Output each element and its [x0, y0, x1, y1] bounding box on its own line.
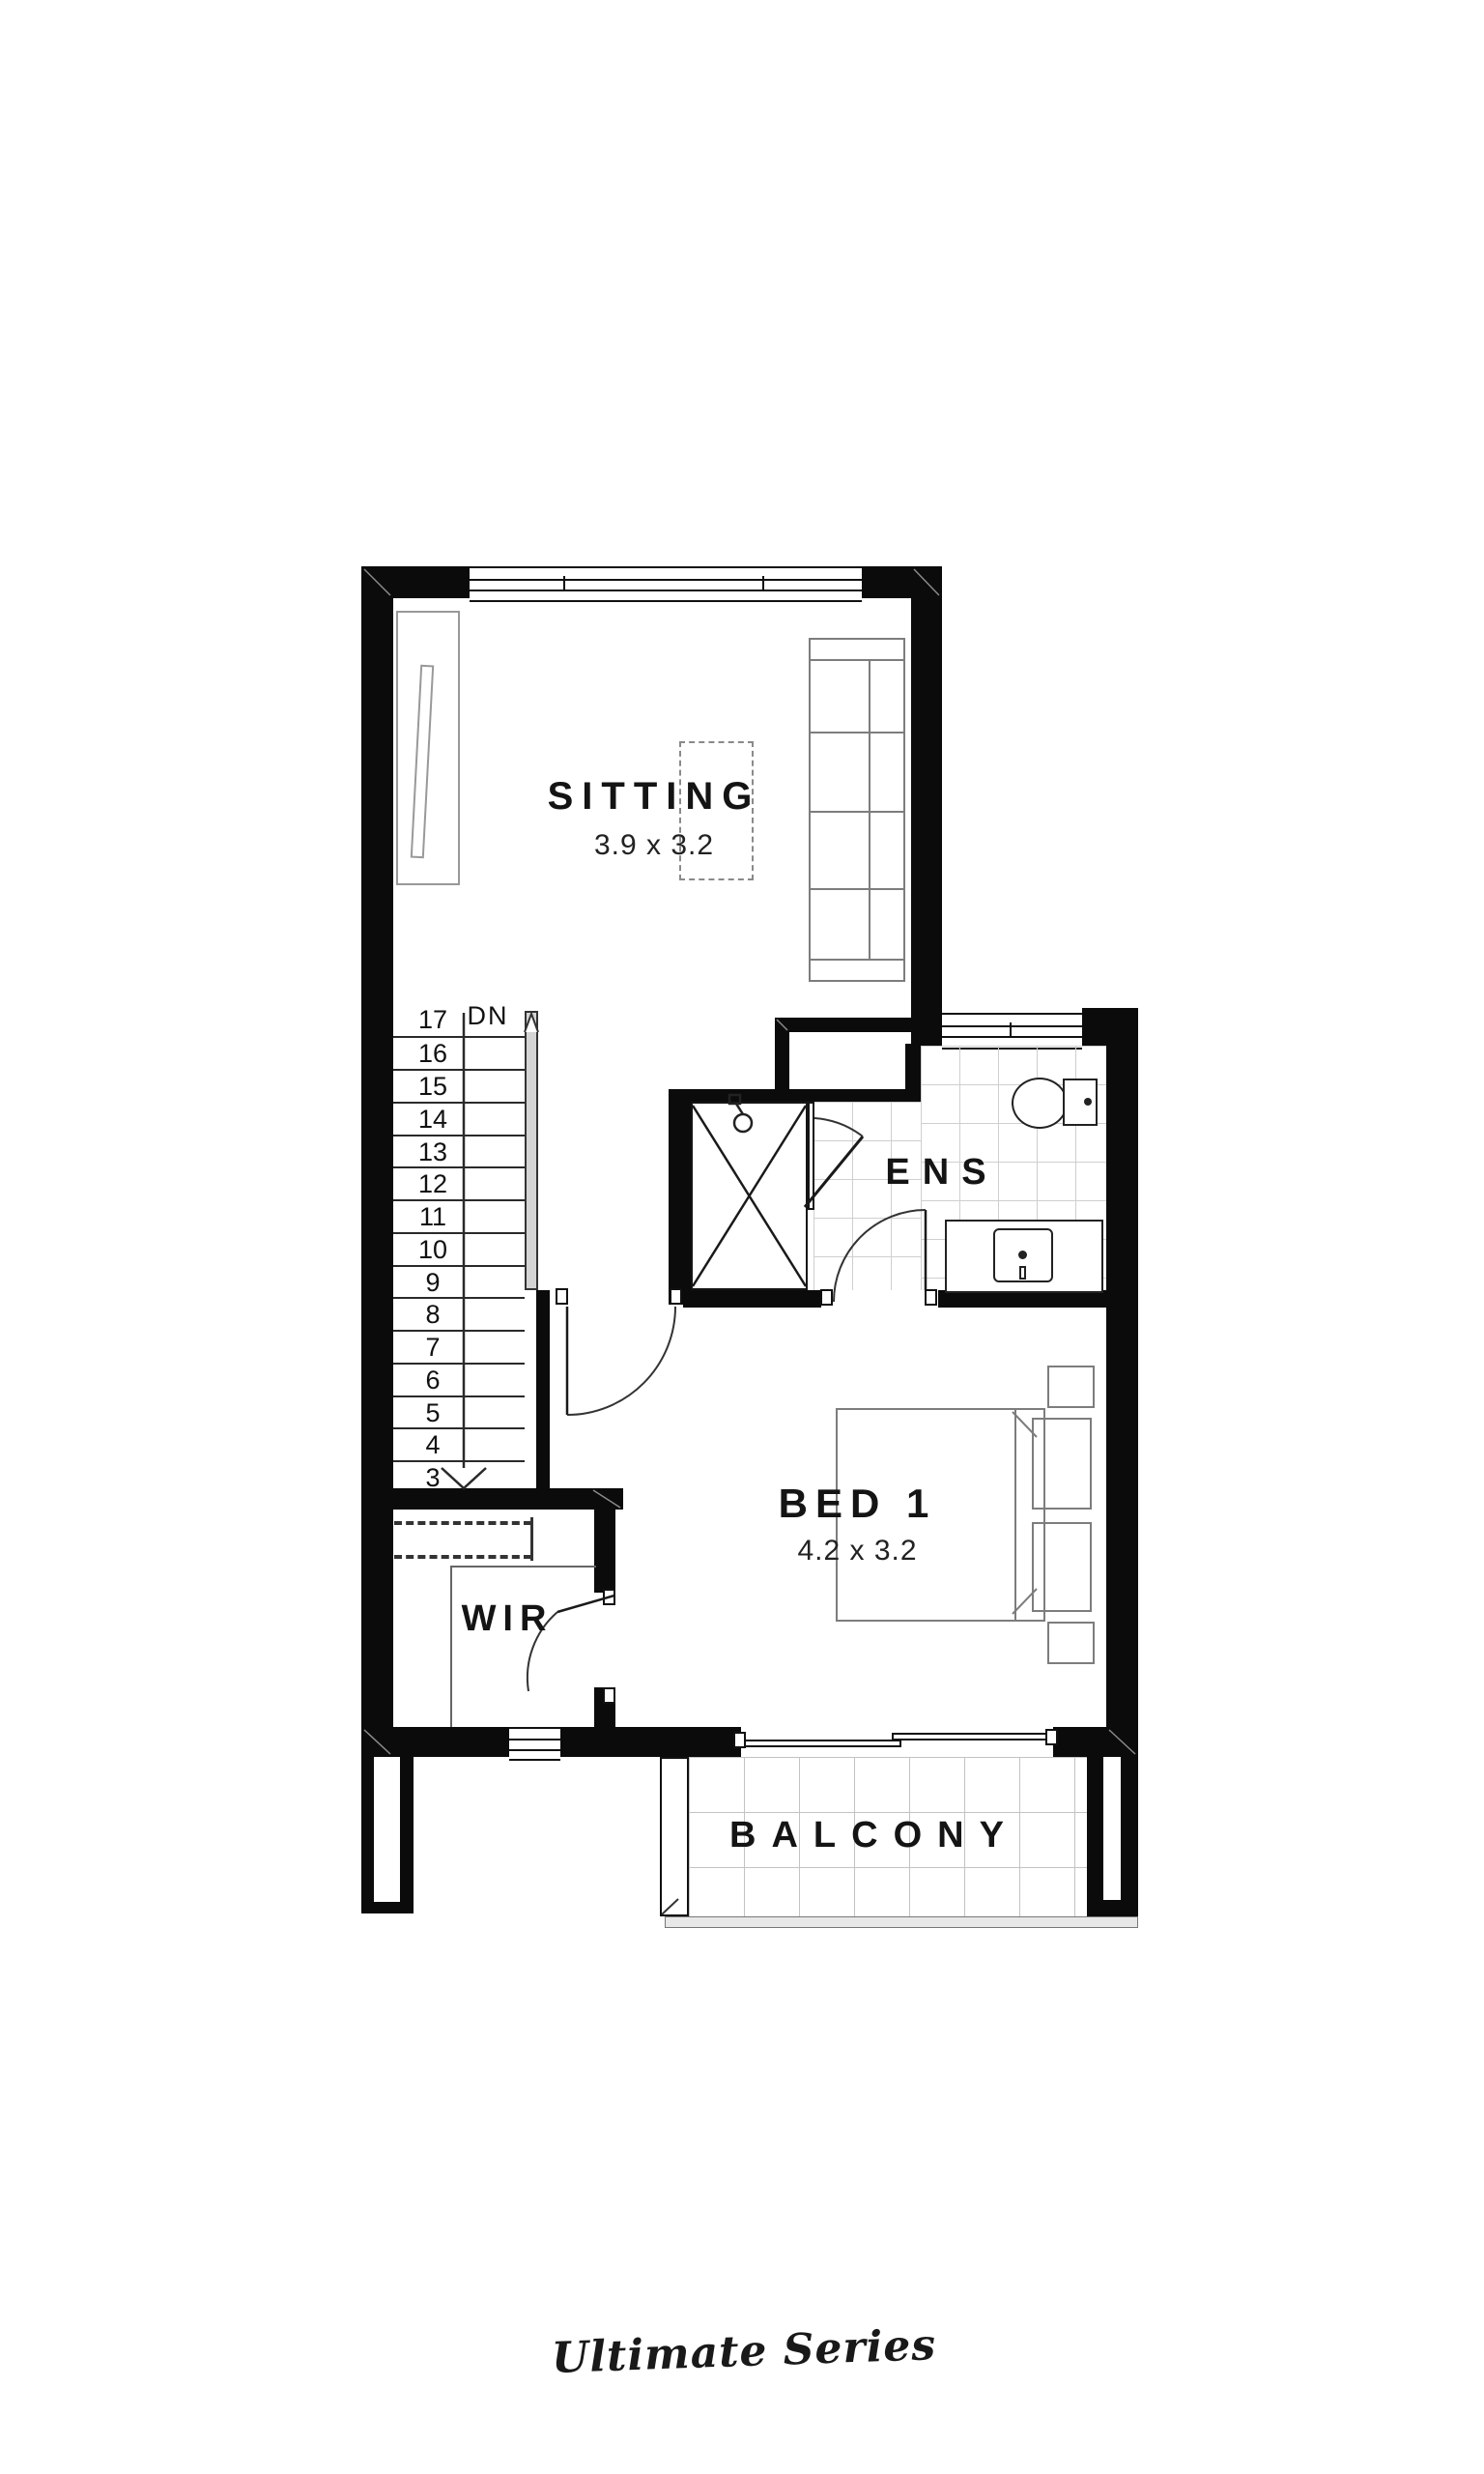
plan-linework: [0, 0, 1484, 2474]
wir-label: WIR: [454, 1598, 560, 1640]
balcony-label: BALCONY: [729, 1815, 1019, 1856]
ens-label: ENS: [884, 1152, 1000, 1194]
sitting-dims: 3.9 x 3.2: [533, 829, 775, 862]
bed1-label: BED 1: [778, 1481, 937, 1527]
bed1-dims: 4.2 x 3.2: [783, 1535, 932, 1568]
floor-plan-page: 17 DN 16 15 14 13 12 11 10 9 8 7 6 5 4 3: [0, 0, 1484, 2474]
sitting-label: SITTING: [533, 775, 775, 819]
